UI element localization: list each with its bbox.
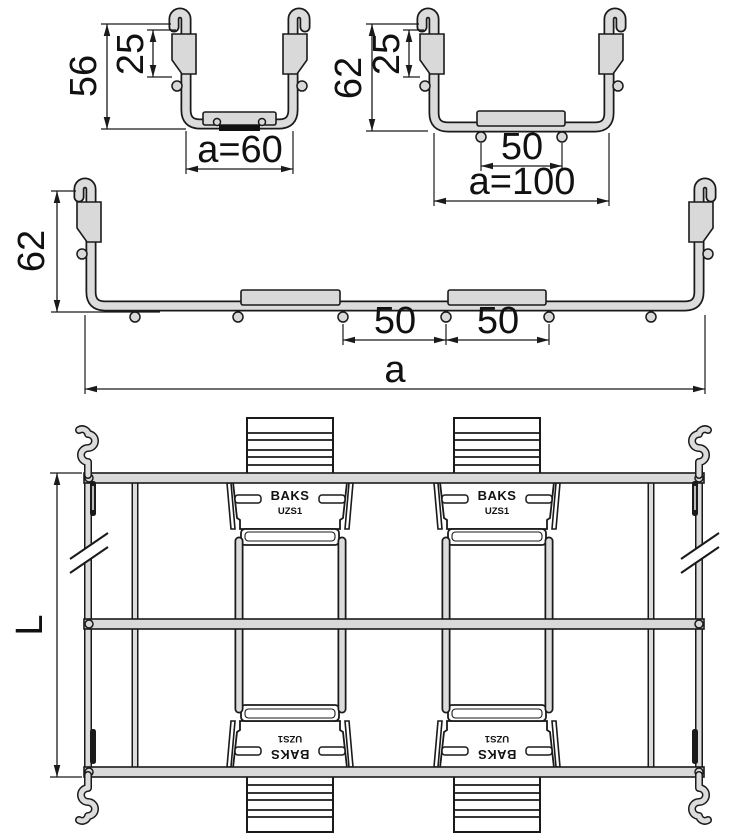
side-plate-left xyxy=(172,34,196,74)
profile-large-wire xyxy=(79,183,711,306)
cross-rail-middle xyxy=(84,619,704,629)
profile-medium-wire xyxy=(422,13,621,127)
edge-rod xyxy=(90,729,96,764)
cross-rail-top xyxy=(84,473,704,483)
dim-plate-50: 50 xyxy=(477,300,519,342)
coupler-slot-right xyxy=(319,495,345,503)
dim-length-L: L xyxy=(9,614,51,635)
dim-width-a60: a=60 xyxy=(197,129,283,171)
coupler-brand-label: BAKS xyxy=(271,488,310,503)
edge-rod xyxy=(692,729,698,764)
dim-height-56: 56 xyxy=(63,55,105,97)
side-plate-left xyxy=(420,34,444,74)
wire-bump xyxy=(172,81,182,91)
profile-small-a60: 56 25 a=60 xyxy=(63,13,307,174)
dim-hook-25: 25 xyxy=(366,33,408,75)
profile-large-a: 62 50 50 a xyxy=(11,183,713,394)
dim-hook-25: 25 xyxy=(110,33,152,75)
bottom-plate-1 xyxy=(241,290,340,305)
side-plate-right xyxy=(283,34,307,74)
bottom-plate xyxy=(477,111,565,126)
technical-drawing-page: 56 25 a=60 62 25 50 xyxy=(0,0,756,838)
cross-rail-bottom xyxy=(84,767,704,777)
wire-bump xyxy=(297,81,307,91)
side-plate-right xyxy=(599,34,623,74)
side-plate-left xyxy=(77,202,101,242)
tray-top-view: BAKS UZS1 xyxy=(9,418,719,832)
dim-height-62: 62 xyxy=(328,57,370,99)
coupler-slot-left xyxy=(235,495,261,503)
coupler-model-label: UZS1 xyxy=(278,506,303,517)
drawing-canvas: 56 25 a=60 62 25 50 xyxy=(0,0,756,838)
coupler-band-inner xyxy=(245,532,335,541)
dim-height-62: 62 xyxy=(11,230,53,272)
profile-medium-a100: 62 25 50 a=100 xyxy=(328,13,623,206)
dim-width-a: a xyxy=(384,349,406,391)
side-plate-right xyxy=(689,202,713,242)
dim-width-a100: a=100 xyxy=(469,161,576,203)
dim-gap-50: 50 xyxy=(374,300,416,342)
